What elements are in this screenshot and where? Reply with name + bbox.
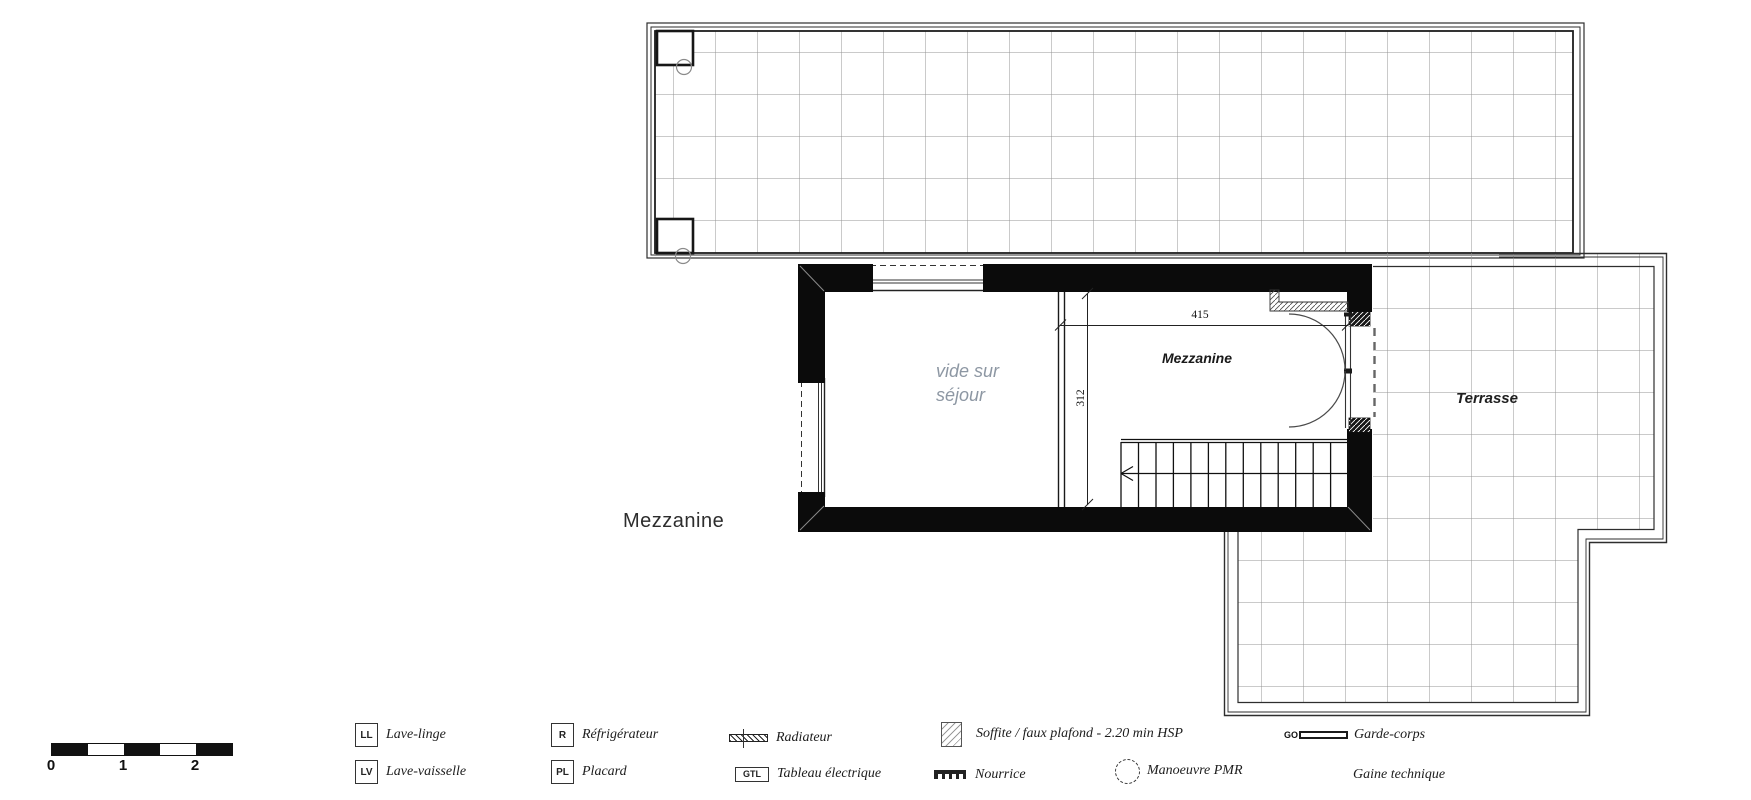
scale-label-1: 1: [113, 757, 133, 774]
void-over-living-label-line2: séjour: [936, 384, 985, 407]
legend-item-placard: PL Placard: [551, 759, 627, 785]
legend-label: Réfrigérateur: [582, 727, 658, 743]
terrace-post-bottom: [657, 219, 693, 264]
legend-item-gaine-technique: Gaine technique: [1353, 762, 1445, 788]
legend-item-lave-linge: LL Lave-linge: [355, 722, 446, 748]
terrasse-label: Terrasse: [1417, 390, 1557, 407]
window-top: [868, 264, 988, 292]
mezzanine-room-label: Mezzanine: [1117, 350, 1277, 366]
dimension-312-value: 312: [1075, 383, 1087, 413]
floor-title: Mezzanine: [623, 510, 724, 533]
legend-label: Radiateur: [776, 730, 832, 746]
top-terrace-tile-grid: [655, 31, 1573, 253]
lave-vaisselle-icon: LV: [355, 760, 378, 784]
soffite-hatch-icon: [941, 722, 962, 747]
pmr-dashed-circle-icon: [1115, 759, 1140, 784]
legend-label: Gaine technique: [1353, 767, 1445, 783]
scale-bar: [51, 743, 233, 756]
radiator-icon: [729, 734, 768, 742]
legend-item-tableau-electrique: GTL Tableau électrique: [735, 761, 881, 787]
legend-item-radiateur: Radiateur: [729, 725, 832, 751]
legend-label: Soffite / faux plafond - 2.20 min HSP: [976, 726, 1183, 742]
placard-icon: PL: [551, 760, 574, 784]
legend-item-soffite: Soffite / faux plafond - 2.20 min HSP: [941, 721, 1183, 747]
legend-item-refrigerateur: R Réfrigérateur: [551, 722, 658, 748]
legend-label: Lave-vaisselle: [386, 764, 466, 780]
dimension-415-value: 415: [1170, 309, 1230, 321]
legend-label: Placard: [582, 764, 627, 780]
legend-item-lave-vaisselle: LV Lave-vaisselle: [355, 759, 466, 785]
scale-label-2: 2: [185, 757, 205, 774]
void-over-living-label-line1: vide sur: [936, 360, 999, 383]
lave-linge-icon: LL: [355, 723, 378, 747]
legend-label: Tableau électrique: [777, 766, 881, 782]
window-left: [798, 378, 825, 497]
garde-corps-go-tag: GO: [1284, 730, 1298, 740]
legend-label: Garde-corps: [1354, 727, 1425, 743]
legend-label: Nourrice: [975, 767, 1026, 783]
garde-corps-icon: [1299, 731, 1348, 739]
legend-label: Lave-linge: [386, 727, 446, 743]
legend-item-garde-corps: GO Garde-corps: [1284, 722, 1425, 748]
nourrice-manifold-icon: [933, 769, 967, 781]
tableau-electrique-icon: GTL: [735, 767, 769, 782]
refrigerateur-icon: R: [551, 723, 574, 747]
legend-label: Manoeuvre PMR: [1147, 763, 1243, 779]
top-terrace: [647, 23, 1584, 264]
floor-plan-page: Mezzanine vide sur séjour Mezzanine Terr…: [0, 0, 1751, 800]
legend-item-manoeuvre-pmr: Manoeuvre PMR: [1115, 758, 1243, 784]
scale-label-0: 0: [41, 757, 61, 774]
legend-item-nourrice: Nourrice: [933, 762, 1026, 788]
